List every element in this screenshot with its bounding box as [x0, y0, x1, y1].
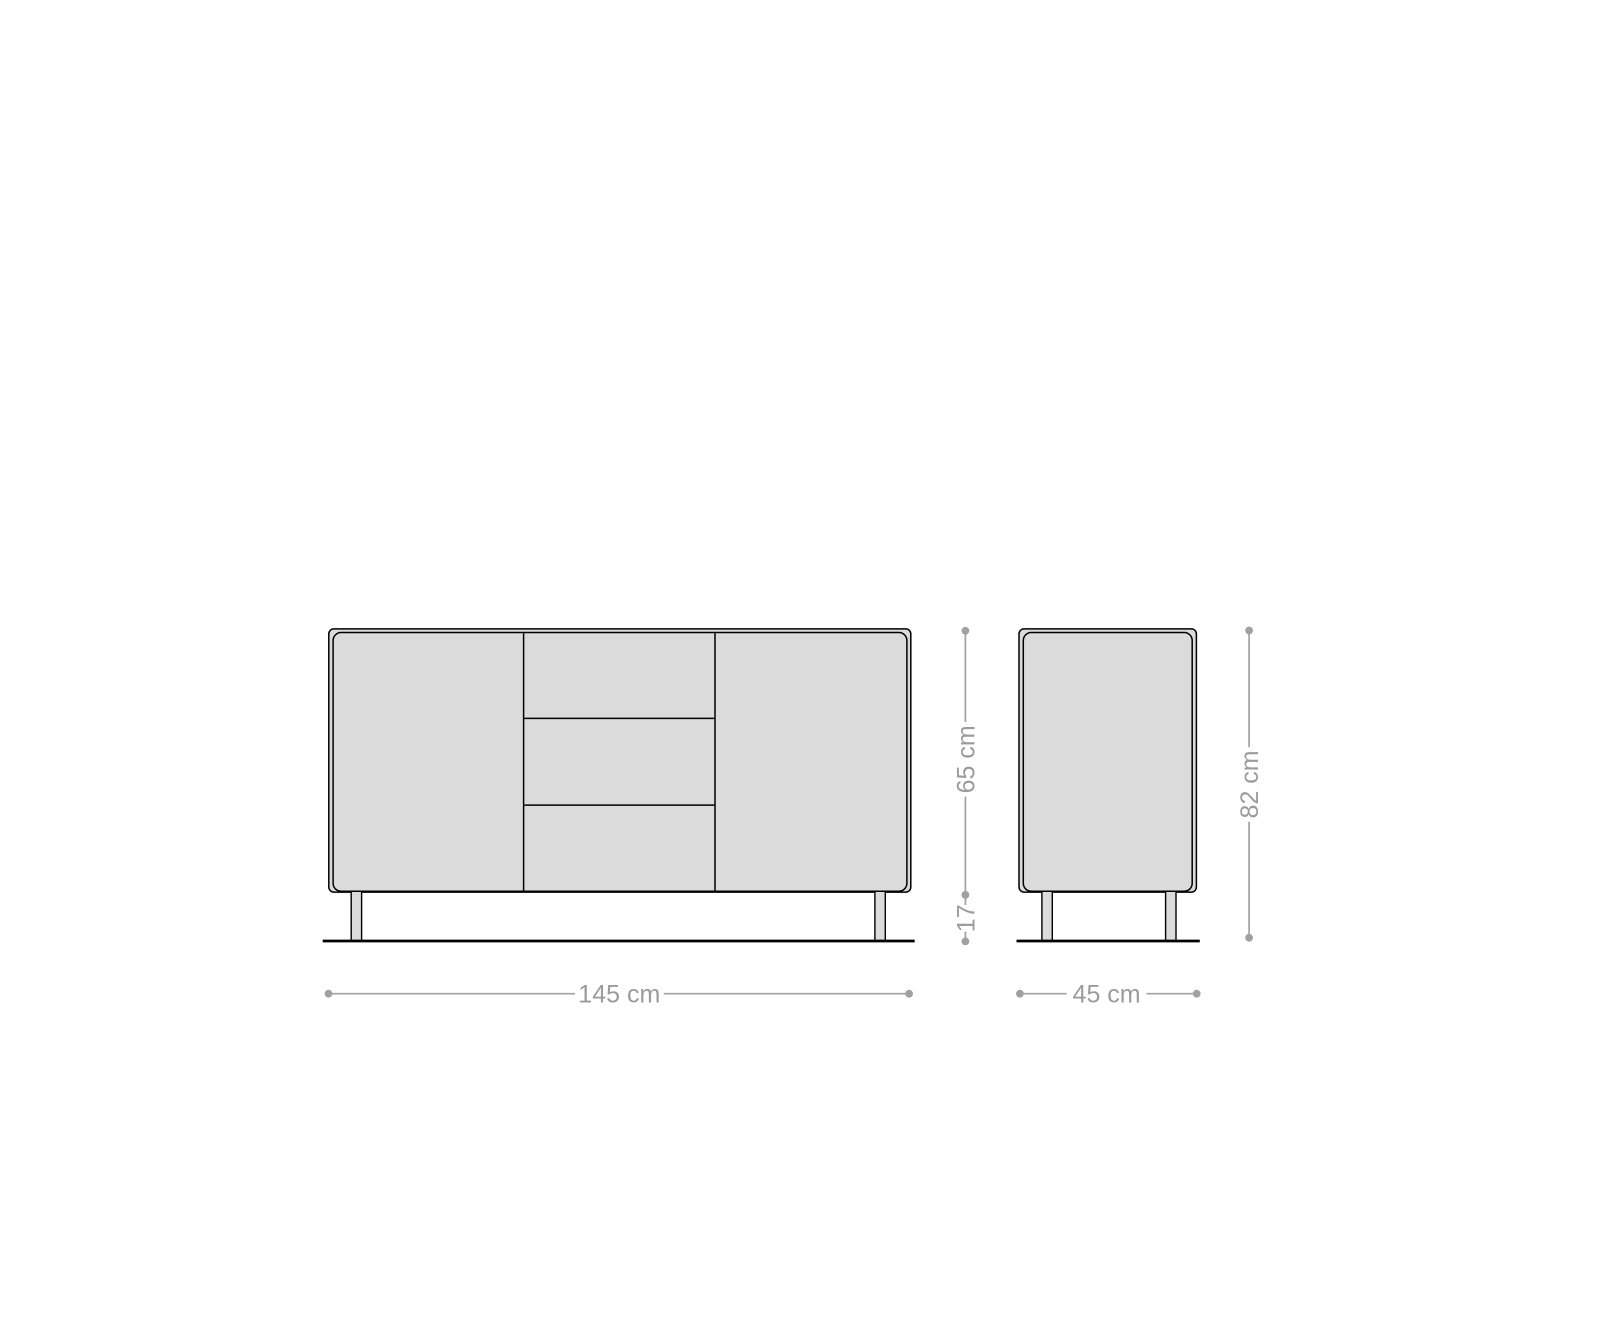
svg-text:65 cm: 65 cm: [952, 725, 980, 793]
svg-text:17: 17: [952, 904, 980, 932]
svg-text:145 cm: 145 cm: [578, 981, 660, 1009]
svg-text:45 cm: 45 cm: [1073, 981, 1141, 1009]
svg-text:82 cm: 82 cm: [1236, 750, 1264, 818]
